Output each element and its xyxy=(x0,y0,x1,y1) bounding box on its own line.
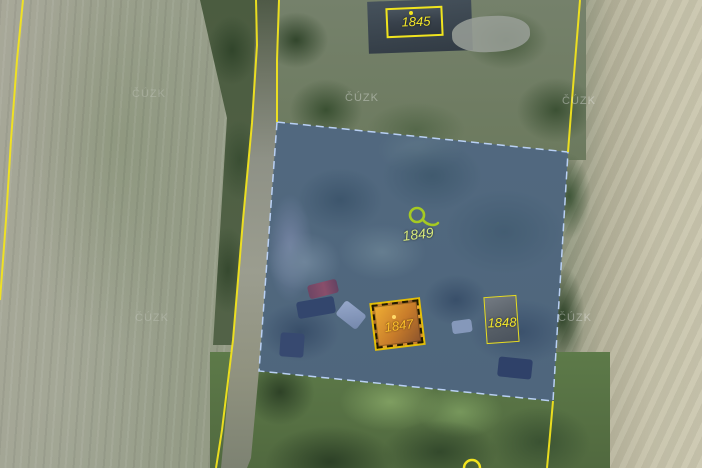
cuzk-watermark: ČÚZK xyxy=(562,95,596,107)
boundary-line-road-left xyxy=(216,0,257,468)
boundary-line-left-field xyxy=(0,0,23,300)
boundary-line-right-top xyxy=(568,0,580,152)
parcel-label-1845[interactable]: 1845 xyxy=(396,13,436,29)
cadastre-vector-layer xyxy=(0,0,702,468)
cuzk-watermark: ČÚZK xyxy=(345,92,379,104)
map-canvas[interactable]: 1845 1849 1847 1848 ČÚZK ČÚZK ČÚZK ČÚZK … xyxy=(0,0,702,468)
selected-parcel-overlay[interactable] xyxy=(259,122,568,401)
parcel-label-1848[interactable]: 1848 xyxy=(484,314,521,330)
boundary-line-right-bottom xyxy=(547,401,553,468)
cuzk-watermark: ČÚZK xyxy=(135,312,169,324)
boundary-point-symbol-icon xyxy=(464,460,480,468)
cuzk-watermark: ČÚZK xyxy=(558,312,592,324)
boundary-line-road-right xyxy=(277,0,279,122)
cuzk-watermark: ČÚZK xyxy=(132,88,166,100)
